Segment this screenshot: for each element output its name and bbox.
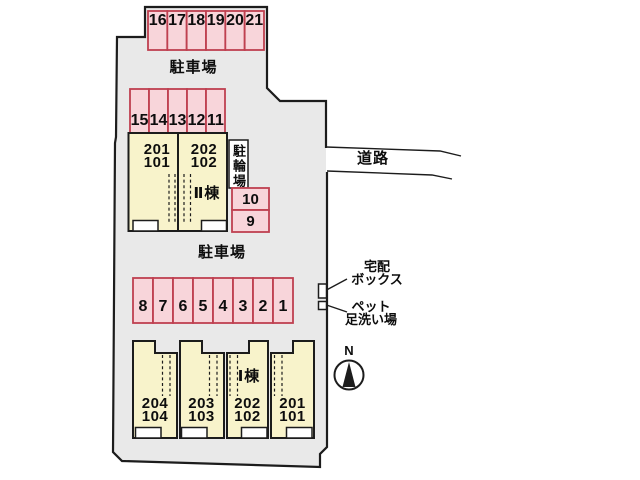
building1-unit-label: 203 103 xyxy=(188,397,215,423)
building1-entrance xyxy=(182,428,208,439)
parking-space-number: 19 xyxy=(207,13,225,29)
parking-space-number: 20 xyxy=(226,13,244,29)
parking-space-number: 14 xyxy=(150,113,168,129)
parking-space-number: 2 xyxy=(259,299,268,315)
parking-space-number: 6 xyxy=(179,299,188,315)
parking-area-label: 駐車場 xyxy=(198,245,246,260)
road-edge-top xyxy=(326,147,461,156)
unit-lower-number: 101 xyxy=(279,410,306,423)
bicycle-parking-label: 駐輪場 xyxy=(232,144,245,189)
building2-unit-label: 202 102 xyxy=(191,143,218,169)
parking-space-number: 12 xyxy=(188,113,206,129)
parking-space-number: 17 xyxy=(168,13,186,29)
road-edge-bottom xyxy=(327,171,452,179)
unit-lower-number: 101 xyxy=(144,156,171,169)
parking-space-number: 3 xyxy=(239,299,248,315)
road-label: 道路 xyxy=(357,151,389,166)
unit-lower-number: 102 xyxy=(234,410,261,423)
parking-space-number: 16 xyxy=(149,13,167,29)
building2-entrance xyxy=(133,221,158,232)
parking-space-number: 13 xyxy=(169,113,187,129)
building1-name-label: Ⅰ棟 xyxy=(238,369,261,384)
delivery-box-label-line2: ボックス xyxy=(351,274,403,287)
building1-entrance xyxy=(136,428,162,439)
pet-wash-label-line2: 足洗い場 xyxy=(345,314,397,327)
parking-space-number: 5 xyxy=(199,299,208,315)
building1-unit-label: 201 101 xyxy=(279,397,306,423)
delivery-box-leader-line xyxy=(327,279,348,290)
parking-space-number: 4 xyxy=(219,299,228,315)
parking-space-number: 8 xyxy=(139,299,148,315)
parking-space-number: 1 xyxy=(279,299,288,315)
building2-unit-label: 201 101 xyxy=(144,143,171,169)
pet-wash-leader-line xyxy=(327,305,348,312)
building1-entrance xyxy=(287,428,313,439)
building2-name-label: Ⅱ棟 xyxy=(194,186,221,201)
parking-space-number: 15 xyxy=(131,113,149,129)
north-label: N xyxy=(344,344,353,357)
site-plan-drawing xyxy=(0,0,640,480)
parking-row-middle xyxy=(133,278,293,323)
delivery-box-label: 宅配 ボックス xyxy=(351,261,403,286)
building1-entrance xyxy=(242,428,268,439)
pet-wash-marker xyxy=(319,302,327,310)
delivery-box-marker xyxy=(319,284,327,298)
parking-space-number: 11 xyxy=(207,113,224,129)
parking-space-number: 7 xyxy=(159,299,168,315)
parking-area-label: 駐車場 xyxy=(169,60,217,75)
parking-space-number: 10 xyxy=(242,192,259,207)
unit-lower-number: 103 xyxy=(188,410,215,423)
unit-lower-number: 104 xyxy=(142,410,169,423)
parking-space-number: 21 xyxy=(245,13,263,29)
pet-wash-label: ペット 足洗い場 xyxy=(345,301,397,326)
building1-unit-label: 204 104 xyxy=(142,397,169,423)
parking-space-number: 9 xyxy=(246,214,254,229)
unit-lower-number: 102 xyxy=(191,156,218,169)
parking-space-number: 18 xyxy=(187,13,205,29)
building1-unit-label: 202 102 xyxy=(234,397,261,423)
site-plan-map: 16 17 18 19 20 21 駐車場 15 14 13 12 11 201… xyxy=(0,0,640,480)
compass xyxy=(335,361,364,390)
building2-entrance xyxy=(202,221,227,232)
